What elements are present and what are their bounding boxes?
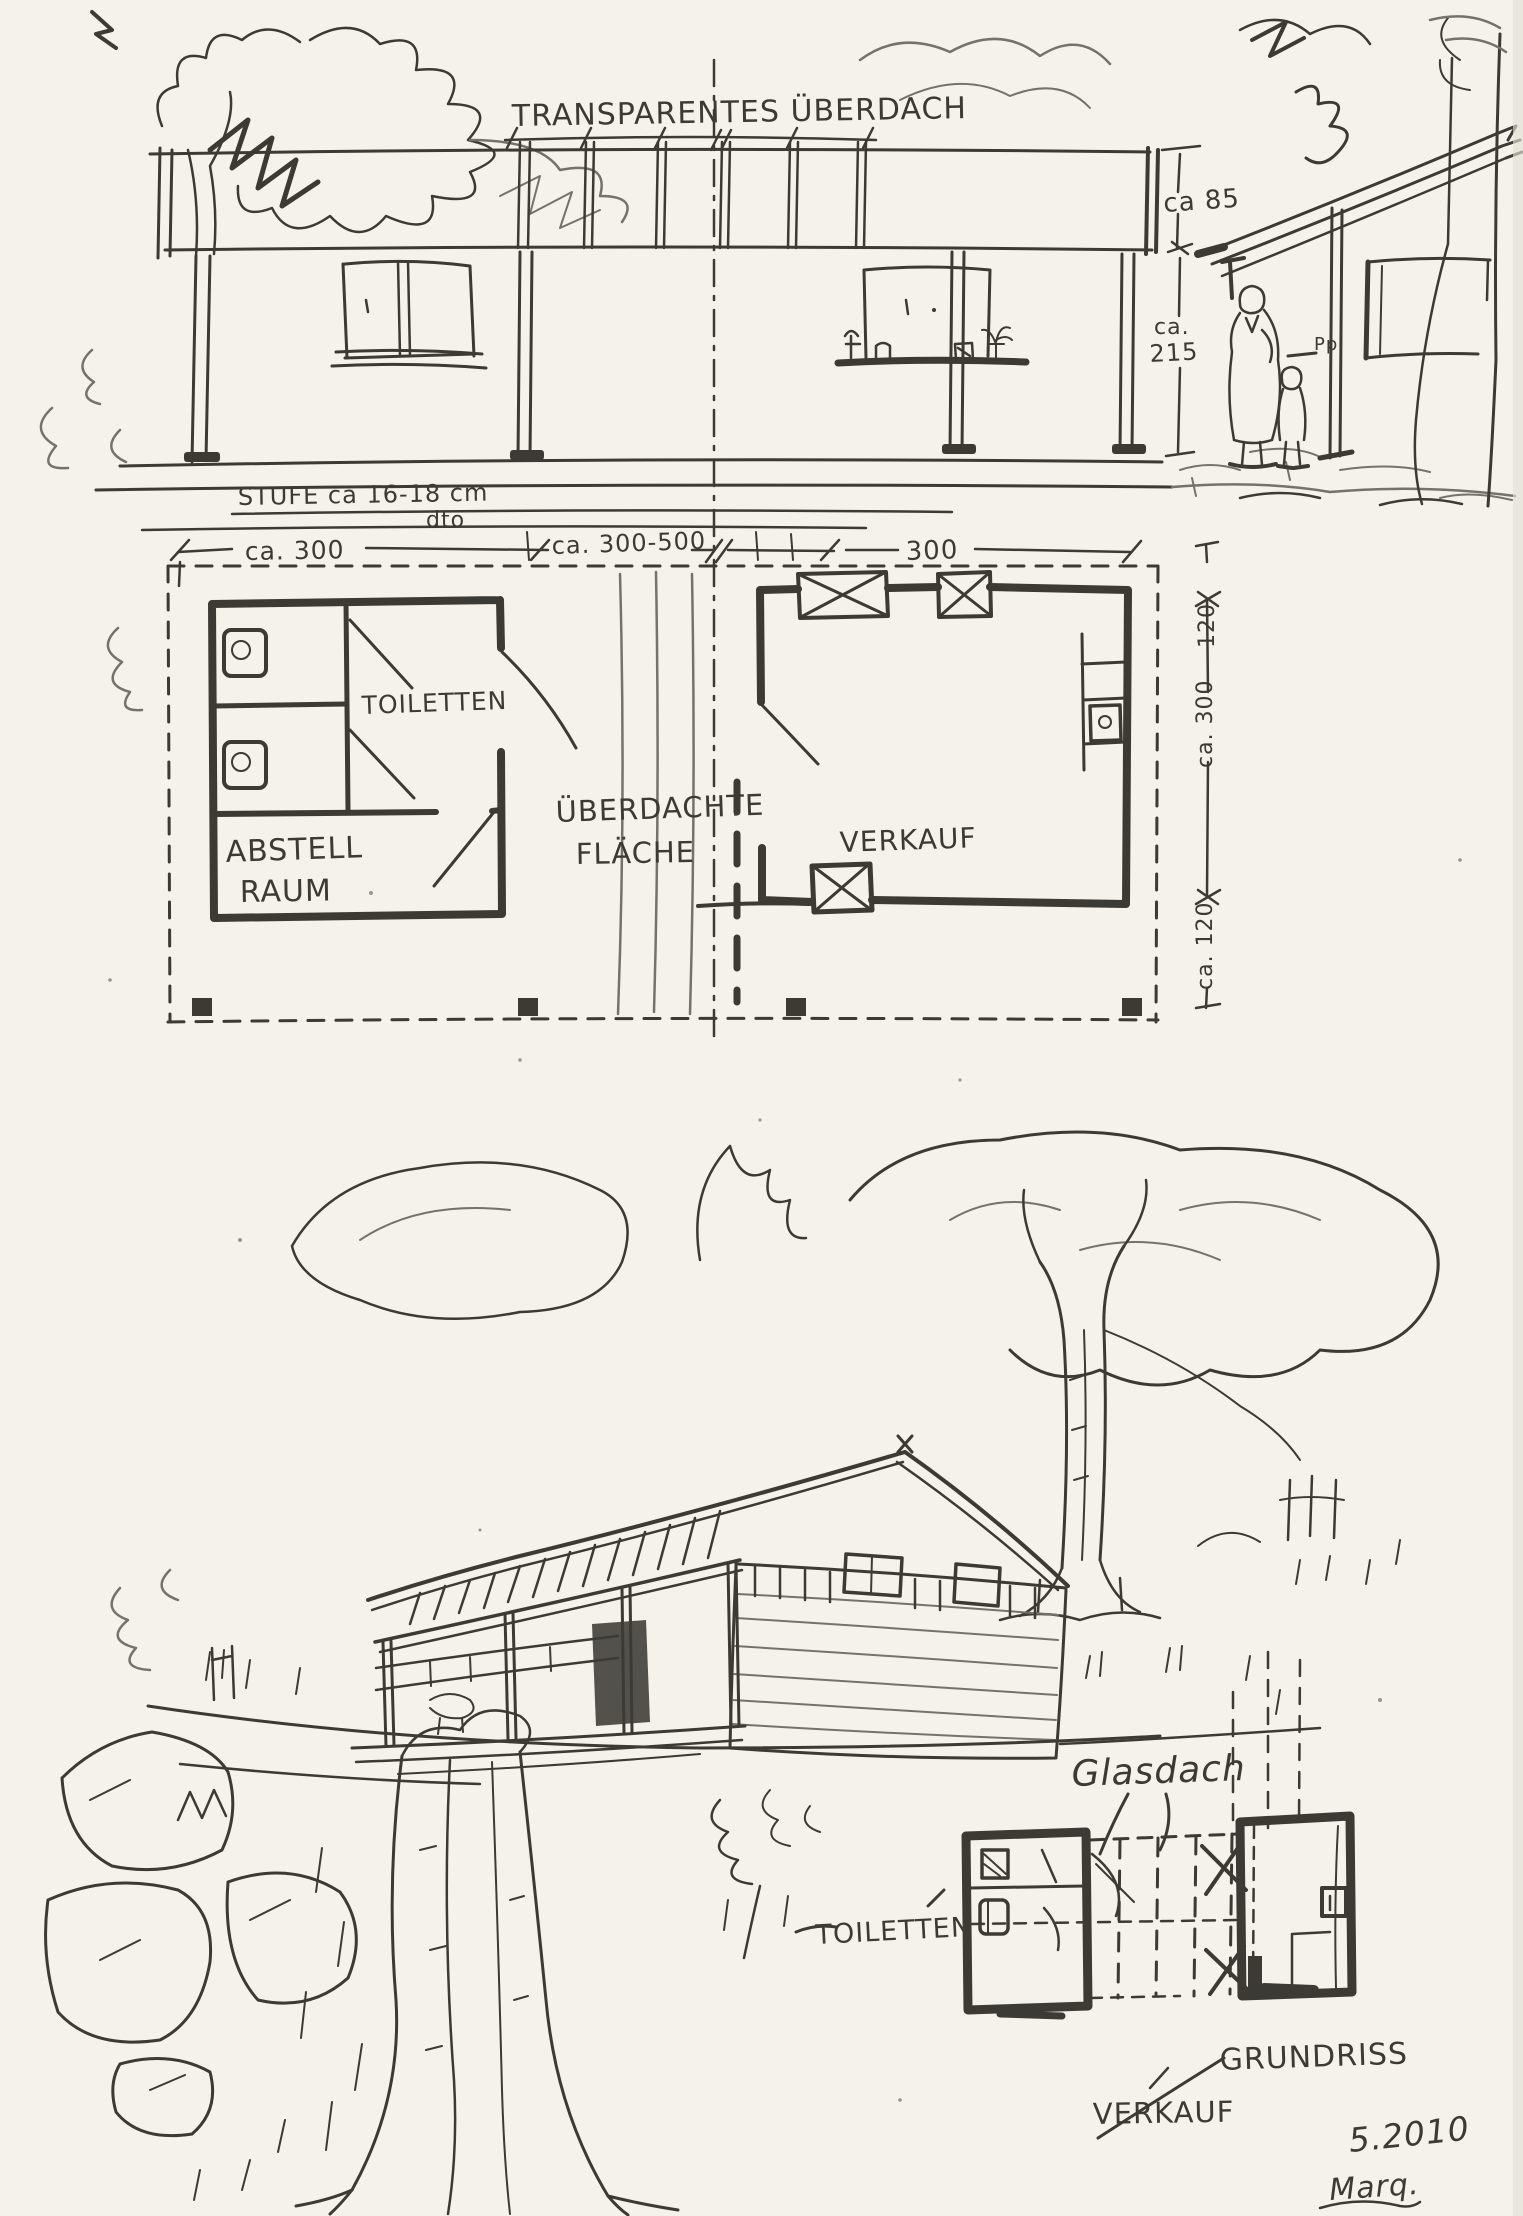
plan-post bbox=[1122, 998, 1142, 1016]
sketch-page: TRANSPARENTES ÜBERDACH STUFE ca 16-18 cm… bbox=[0, 0, 1523, 2216]
wall-post-mid bbox=[518, 252, 532, 458]
plan-post bbox=[786, 998, 806, 1016]
roof-ridge-edge bbox=[368, 1452, 905, 1600]
counter-window bbox=[838, 267, 1026, 363]
fascia-right-cap bbox=[1146, 148, 1158, 254]
hatch-x-box bbox=[812, 864, 872, 912]
sign-board bbox=[1366, 258, 1490, 358]
tree-trunk-sketch bbox=[1000, 1180, 1300, 1620]
storage-wall bbox=[214, 810, 501, 814]
window-x-box bbox=[798, 572, 888, 618]
corner-speck bbox=[92, 12, 116, 48]
dim-wall-label-1: ca. bbox=[1154, 315, 1190, 340]
mini-wc-fixture bbox=[980, 1900, 1008, 1934]
fascia-bottom-line bbox=[165, 247, 1152, 250]
verkauf-leader bbox=[1150, 2068, 1168, 2088]
door-leaf-storage bbox=[434, 812, 494, 886]
toilet-block: TOILETTEN ABSTELL RAUM bbox=[212, 600, 576, 918]
footer-signature-block: 5.2010 Marq. bbox=[1320, 2108, 1472, 2208]
fascia-left-cap bbox=[158, 148, 172, 258]
dim-top-right-label: 300 bbox=[905, 535, 959, 567]
dim-side-bottom-label: ca. 120 bbox=[1193, 901, 1218, 990]
rocks-sketch bbox=[46, 1732, 357, 2200]
cabin-sketch bbox=[352, 1436, 1068, 1774]
mini-plan-glass-area bbox=[972, 1834, 1240, 1998]
counter-line bbox=[698, 903, 810, 906]
canopy-glazing bbox=[505, 128, 876, 248]
bush-sketch bbox=[712, 1790, 820, 1958]
projection-dashes bbox=[1233, 1652, 1300, 1828]
mini-floor-plan bbox=[796, 1794, 1352, 2138]
plan-post bbox=[518, 998, 538, 1016]
plan-title-label: GRUNDRISS bbox=[1219, 2036, 1408, 2078]
window-left bbox=[332, 261, 486, 368]
mini-toilets-label: TOILETTEN bbox=[814, 1912, 973, 1951]
dim-right: 120 ca. 300 ca. 120 bbox=[1193, 542, 1220, 1008]
sales-room-label: VERKAUF bbox=[839, 821, 977, 859]
door-leaf-sales bbox=[761, 704, 818, 764]
pergola-post bbox=[1330, 208, 1342, 458]
dim-wall-label-2: 215 bbox=[1149, 337, 1199, 368]
stall-partition bbox=[214, 704, 346, 706]
margin-doodle bbox=[108, 628, 142, 710]
shelving bbox=[1082, 634, 1126, 770]
gable-window bbox=[844, 1554, 902, 1596]
storage-room-label-2: RAUM bbox=[240, 873, 333, 910]
wc-fixture bbox=[224, 742, 266, 788]
date-label: 5.2010 bbox=[1347, 2108, 1472, 2159]
dim-fascia-label: ca 85 bbox=[1162, 184, 1240, 219]
people-sketch bbox=[1229, 286, 1308, 468]
adult-figure bbox=[1240, 286, 1265, 313]
wall-post-right bbox=[1120, 254, 1134, 452]
porch-eave bbox=[375, 1560, 740, 1642]
canopy-label: TRANSPARENTES ÜBERDACH bbox=[511, 90, 968, 134]
dim-top-middle-label: ca. 300-500 bbox=[551, 527, 706, 560]
counter-shelf bbox=[838, 360, 1026, 363]
door-opening bbox=[592, 1620, 650, 1726]
sketch-drawing: TRANSPARENTES ÜBERDACH STUFE ca 16-18 cm… bbox=[0, 0, 1523, 2216]
covered-area-label-1: ÜBERDACHTE bbox=[555, 788, 765, 829]
sales-room: VERKAUF bbox=[698, 572, 1128, 912]
dim-fascia-height: ca 85 bbox=[1162, 146, 1241, 254]
mini-fixture bbox=[1322, 1888, 1346, 1916]
covered-area-label-2: FLÄCHE bbox=[576, 835, 696, 871]
dim-side-top-label: 120 bbox=[1195, 603, 1220, 648]
glass-roof-label: Glasdach bbox=[1071, 1748, 1247, 1795]
fascia-top-line bbox=[150, 149, 1150, 154]
roof-apex-ornament bbox=[898, 1436, 912, 1452]
step-note: STUFE ca 16-18 cm bbox=[238, 479, 489, 511]
post-sign-label: Pp bbox=[1314, 334, 1338, 355]
door-leaf-entry bbox=[502, 652, 576, 748]
covered-area: ÜBERDACHTE FLÄCHE bbox=[527, 532, 793, 1014]
wc-fixture bbox=[224, 630, 266, 676]
mini-plan-sales-room bbox=[1240, 1816, 1352, 1996]
window-x-box bbox=[938, 572, 991, 617]
plan-post bbox=[192, 998, 212, 1016]
child-figure bbox=[1282, 367, 1302, 389]
dim-side-middle-label: ca. 300 bbox=[1193, 679, 1218, 768]
mini-sales-label: VERKAUF bbox=[1093, 2095, 1235, 2131]
wall-post-left bbox=[192, 256, 210, 462]
corridor-wall bbox=[346, 602, 348, 810]
tree-sketch-right bbox=[860, 16, 1506, 506]
dim-wall-height: ca. 215 bbox=[1149, 258, 1199, 456]
pergola-sketch: Pp bbox=[1198, 126, 1522, 458]
perspective-drawing: Glasdach TOILETTEN GRUNDRISS VERKAUF bbox=[46, 1132, 1439, 2215]
gable-window bbox=[954, 1564, 1000, 1606]
step-ditto: dto bbox=[426, 508, 465, 533]
toilets-room-label: TOILETTEN bbox=[360, 686, 508, 720]
dim-top-left-label: ca. 300 bbox=[245, 535, 345, 566]
scan-edge-shadow bbox=[1513, 0, 1523, 2216]
canopy-top-line bbox=[505, 137, 876, 140]
foliage-sketch bbox=[292, 1132, 1438, 1385]
floor-plan-drawing: TOILETTEN ABSTELL RAUM ÜBERDACHTE FLÄCHE bbox=[168, 527, 1220, 1022]
storage-room-label-1: ABSTELL bbox=[225, 830, 363, 870]
